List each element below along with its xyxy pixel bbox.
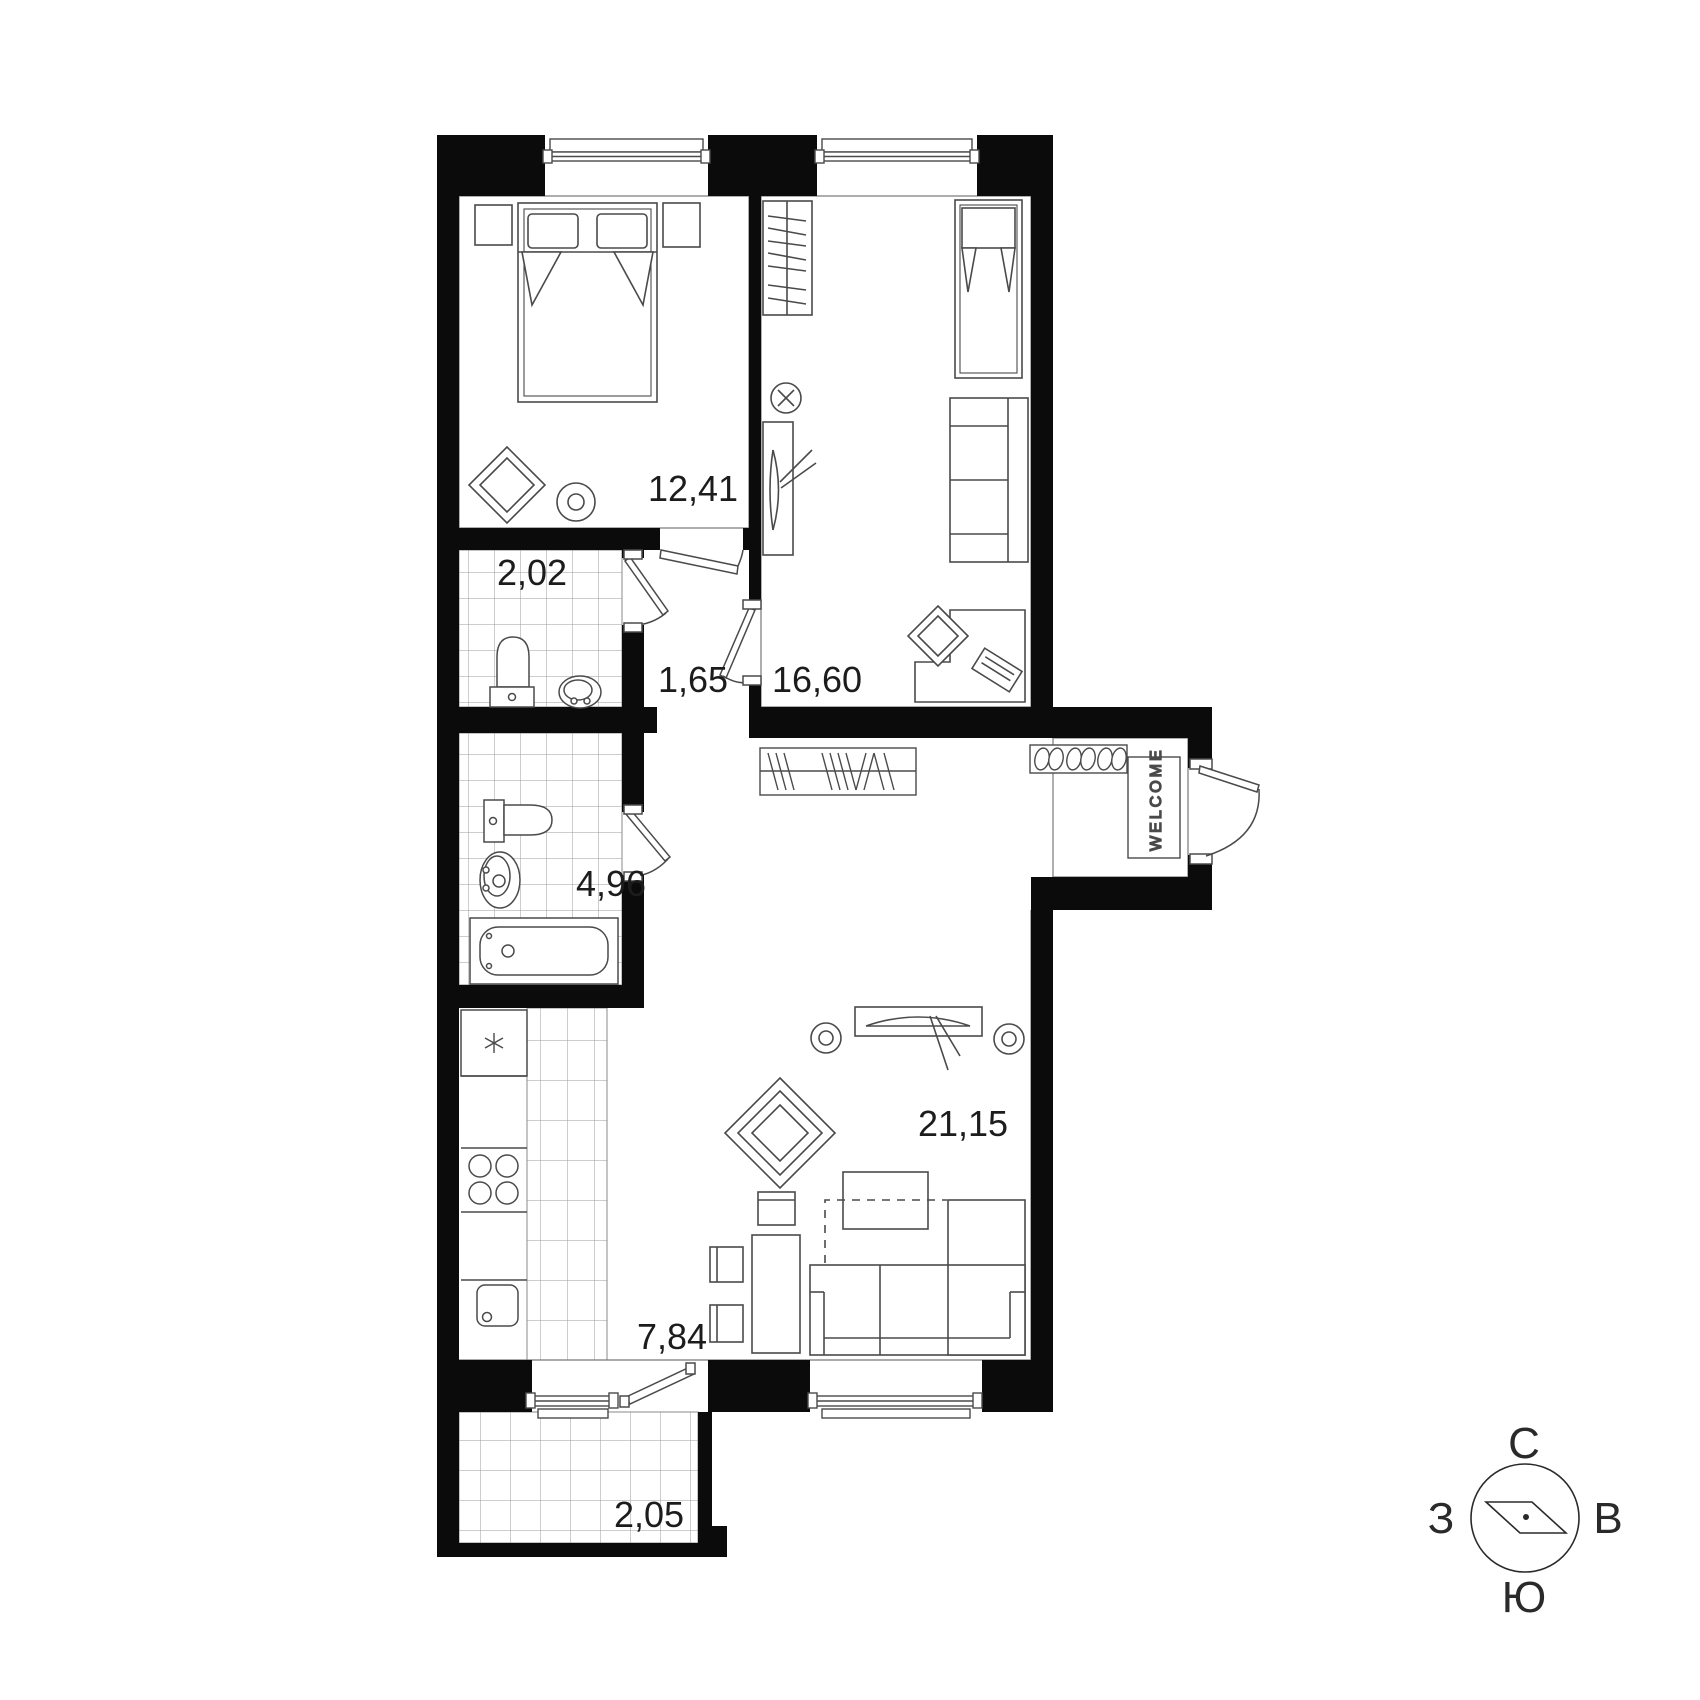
room-label-lounge: 21,15 [918,1103,1008,1144]
wall-bedroom-bottom-jamb [743,528,761,550]
compass: С В Ю З [1428,1419,1623,1622]
kitchen-sink-icon [477,1285,518,1326]
armchair-icon [469,447,545,523]
room-label-toilet-wc: 2,02 [497,552,567,593]
wall-wc-right [622,625,644,707]
wall-hall-divider [749,550,761,607]
compass-west-label: З [1428,1494,1455,1543]
nightstand-icon [663,203,700,247]
floor-plan-drawing: WELCOME [0,0,1700,1700]
shoe-rack-icon [1030,745,1128,773]
chair-icon [710,1247,743,1282]
single-bed-icon [955,200,1022,378]
compass-east-label: В [1593,1494,1622,1543]
fridge-icon [461,1010,527,1076]
kitchen-window [526,1393,618,1418]
kitchen-counter [461,1076,527,1280]
lounge-window [808,1393,982,1418]
wardrobe-icon [763,201,812,315]
wall-bottom-2 [708,1360,810,1412]
speaker-icon [994,1024,1024,1054]
room-label-kitchen: 7,84 [637,1316,707,1357]
wall-top-2 [708,135,817,196]
dining-table-icon [752,1235,800,1353]
room-label-living-room: 16,60 [772,659,862,700]
room-label-hallway: 1,65 [658,659,728,700]
sink-icon [559,676,601,708]
wall-bathroom-right-top [622,733,644,812]
compass-center-dot [1523,1514,1529,1520]
side-table-icon [758,1192,795,1225]
nightstand-icon [475,205,512,245]
bathtub-icon [470,918,618,984]
wall-niche-bottom [1031,877,1212,910]
wall-bedroom-bottom [437,528,660,550]
wall-right-upper [1031,135,1053,707]
living-room-furniture [763,200,1028,702]
vent-fan-icon [771,383,801,413]
wall-bottom-3 [982,1360,1053,1412]
kitchen-units [461,1010,527,1326]
doormat-text: WELCOME [1148,747,1165,851]
floor-plan-page: WELCOME [0,0,1700,1700]
balcony-door [620,1363,695,1407]
sofa-icon [950,398,1028,562]
wall-niche-top [749,707,1212,738]
tv-unit-icon [855,1007,982,1070]
wall-wc-bottom [437,707,657,733]
wall-right-lower [1031,877,1053,1412]
kitchen-tile-floor [527,1008,607,1360]
room-label-bedroom: 12,41 [648,468,738,509]
speaker-icon [811,1023,841,1053]
wc-door [624,550,668,632]
chair-icon [710,1305,743,1342]
bedroom-window [543,139,710,163]
compass-south-label: Ю [1502,1573,1546,1622]
coat-rack-icon [760,748,916,795]
wall-bottom-1 [437,1360,532,1412]
living-room-window [815,139,979,163]
doormat: WELCOME [1128,747,1180,858]
armchair-icon [725,1078,835,1188]
room-label-bathroom: 4,96 [576,863,646,904]
entry-area: WELCOME [760,745,1180,858]
compass-north-label: С [1508,1419,1540,1468]
tv-stand-icon [763,422,816,555]
room-label-balcony: 2,05 [614,1494,684,1535]
entrance-door [1190,759,1259,864]
wall-bedroom-divider [749,196,761,528]
wall-left [437,135,459,1557]
wall-balcony-right [698,1412,712,1532]
lounge-furniture [710,1007,1025,1355]
pouf-icon [557,483,595,521]
pedestal-sink-icon [480,852,520,908]
stove-icon [469,1155,518,1204]
bedroom-door [660,550,743,574]
wall-balcony-bottom [437,1543,712,1557]
double-bed-icon [518,203,657,402]
wall-bathroom-bottom [437,985,644,1008]
